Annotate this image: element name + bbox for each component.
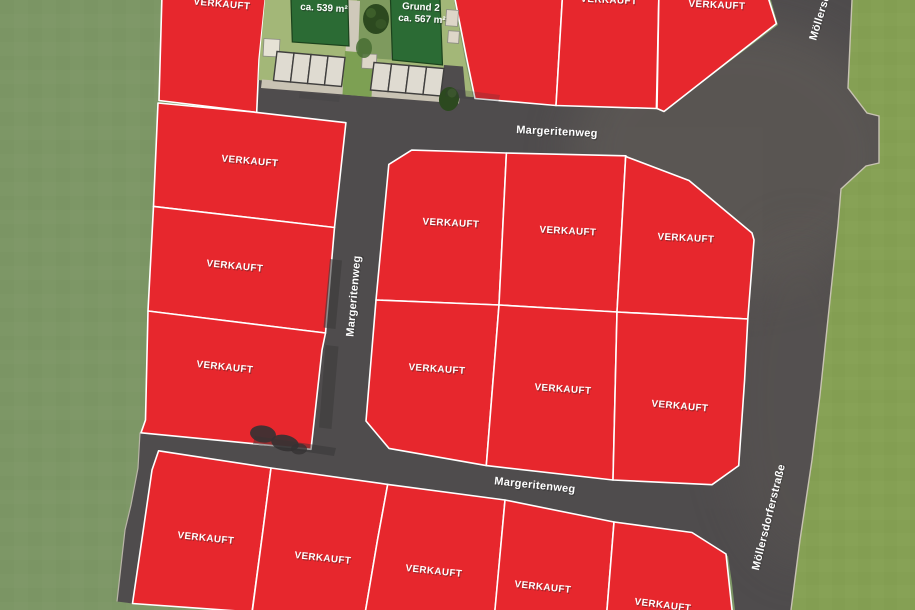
svg-text:Grund 2: Grund 2 bbox=[402, 1, 441, 14]
